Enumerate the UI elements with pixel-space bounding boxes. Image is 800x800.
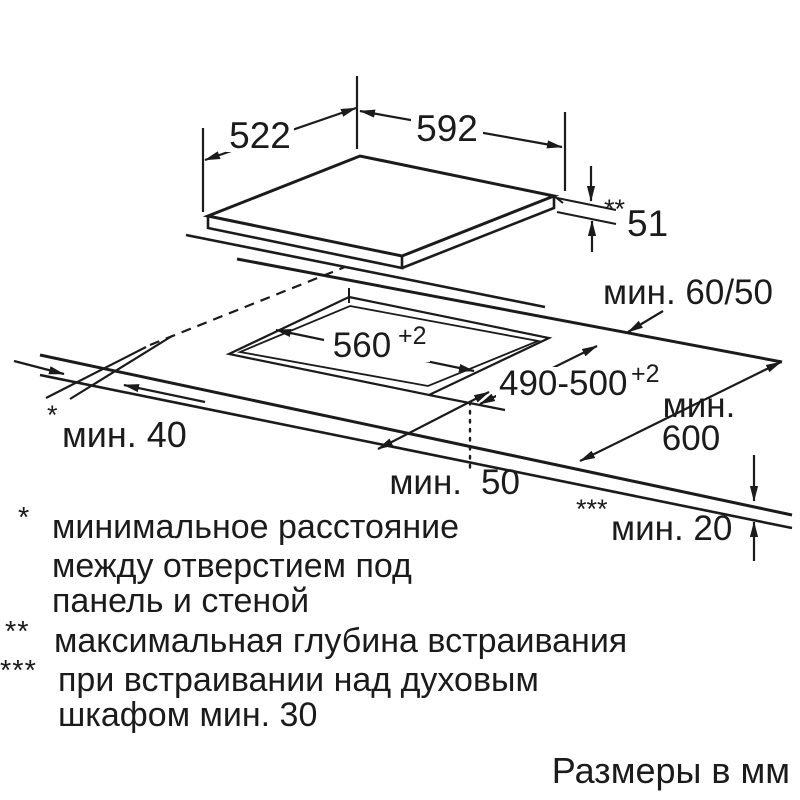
cutout-depth-label: 490-500	[499, 364, 627, 403]
front-clearance-word: мин.	[389, 463, 462, 502]
rear-clearance-leader	[628, 311, 663, 332]
footnote-1-marker: *	[18, 502, 30, 535]
under-clearance-marker: ***	[576, 494, 608, 524]
dim-line-50	[378, 392, 489, 449]
footnote-1-line-2: между отверстием под	[52, 546, 412, 586]
units-note: Размеры в мм	[552, 750, 790, 792]
rear-clearance-label: мин. 60/50	[603, 273, 773, 312]
cutout-width-tolerance: +2	[398, 322, 427, 350]
dim-40-arrow-right	[14, 361, 64, 374]
front-clearance-value: 50	[481, 463, 520, 502]
panel-width-label: 522	[229, 115, 291, 156]
cutout-width-label: 560	[333, 326, 391, 365]
side-clearance-marker: *	[47, 400, 58, 430]
installation-diagram: 522 592 ** 51 560 +2 490-500 +2 мин. 60/…	[0, 0, 800, 800]
dimension-texts: 522 592 ** 51 560 +2 490-500 +2 мин. 60/…	[47, 108, 773, 548]
footnote-1-line-1: минимальное расстояние	[52, 507, 459, 547]
footnote-3-marker: ***	[0, 655, 37, 688]
footnote-1-line-3: панель и стеной	[52, 581, 309, 621]
side-clearance-label: мин. 40	[62, 414, 187, 455]
panel-length-label: 592	[416, 108, 478, 149]
dim-40-ext-far	[70, 336, 172, 399]
footnote-2-marker: **	[5, 616, 30, 649]
wall-line	[186, 235, 545, 307]
alignment-dashed-line	[150, 267, 345, 345]
footnote-3-line-2: шкафом мин. 30	[58, 695, 317, 735]
hob-top-face	[208, 156, 554, 256]
cutout-depth-tolerance: +2	[631, 360, 660, 388]
hob-front-right-band	[402, 196, 554, 268]
footnote-2-line-1: максимальная глубина встраивания	[54, 621, 627, 661]
panel-depth-label: 51	[627, 203, 668, 244]
footnote-3-line-1: при встраивании над духовым	[58, 660, 539, 700]
under-clearance-label: мин. 20	[611, 509, 732, 548]
worktop-depth-value: 600	[662, 419, 720, 458]
panel-depth-marker: **	[604, 194, 626, 224]
